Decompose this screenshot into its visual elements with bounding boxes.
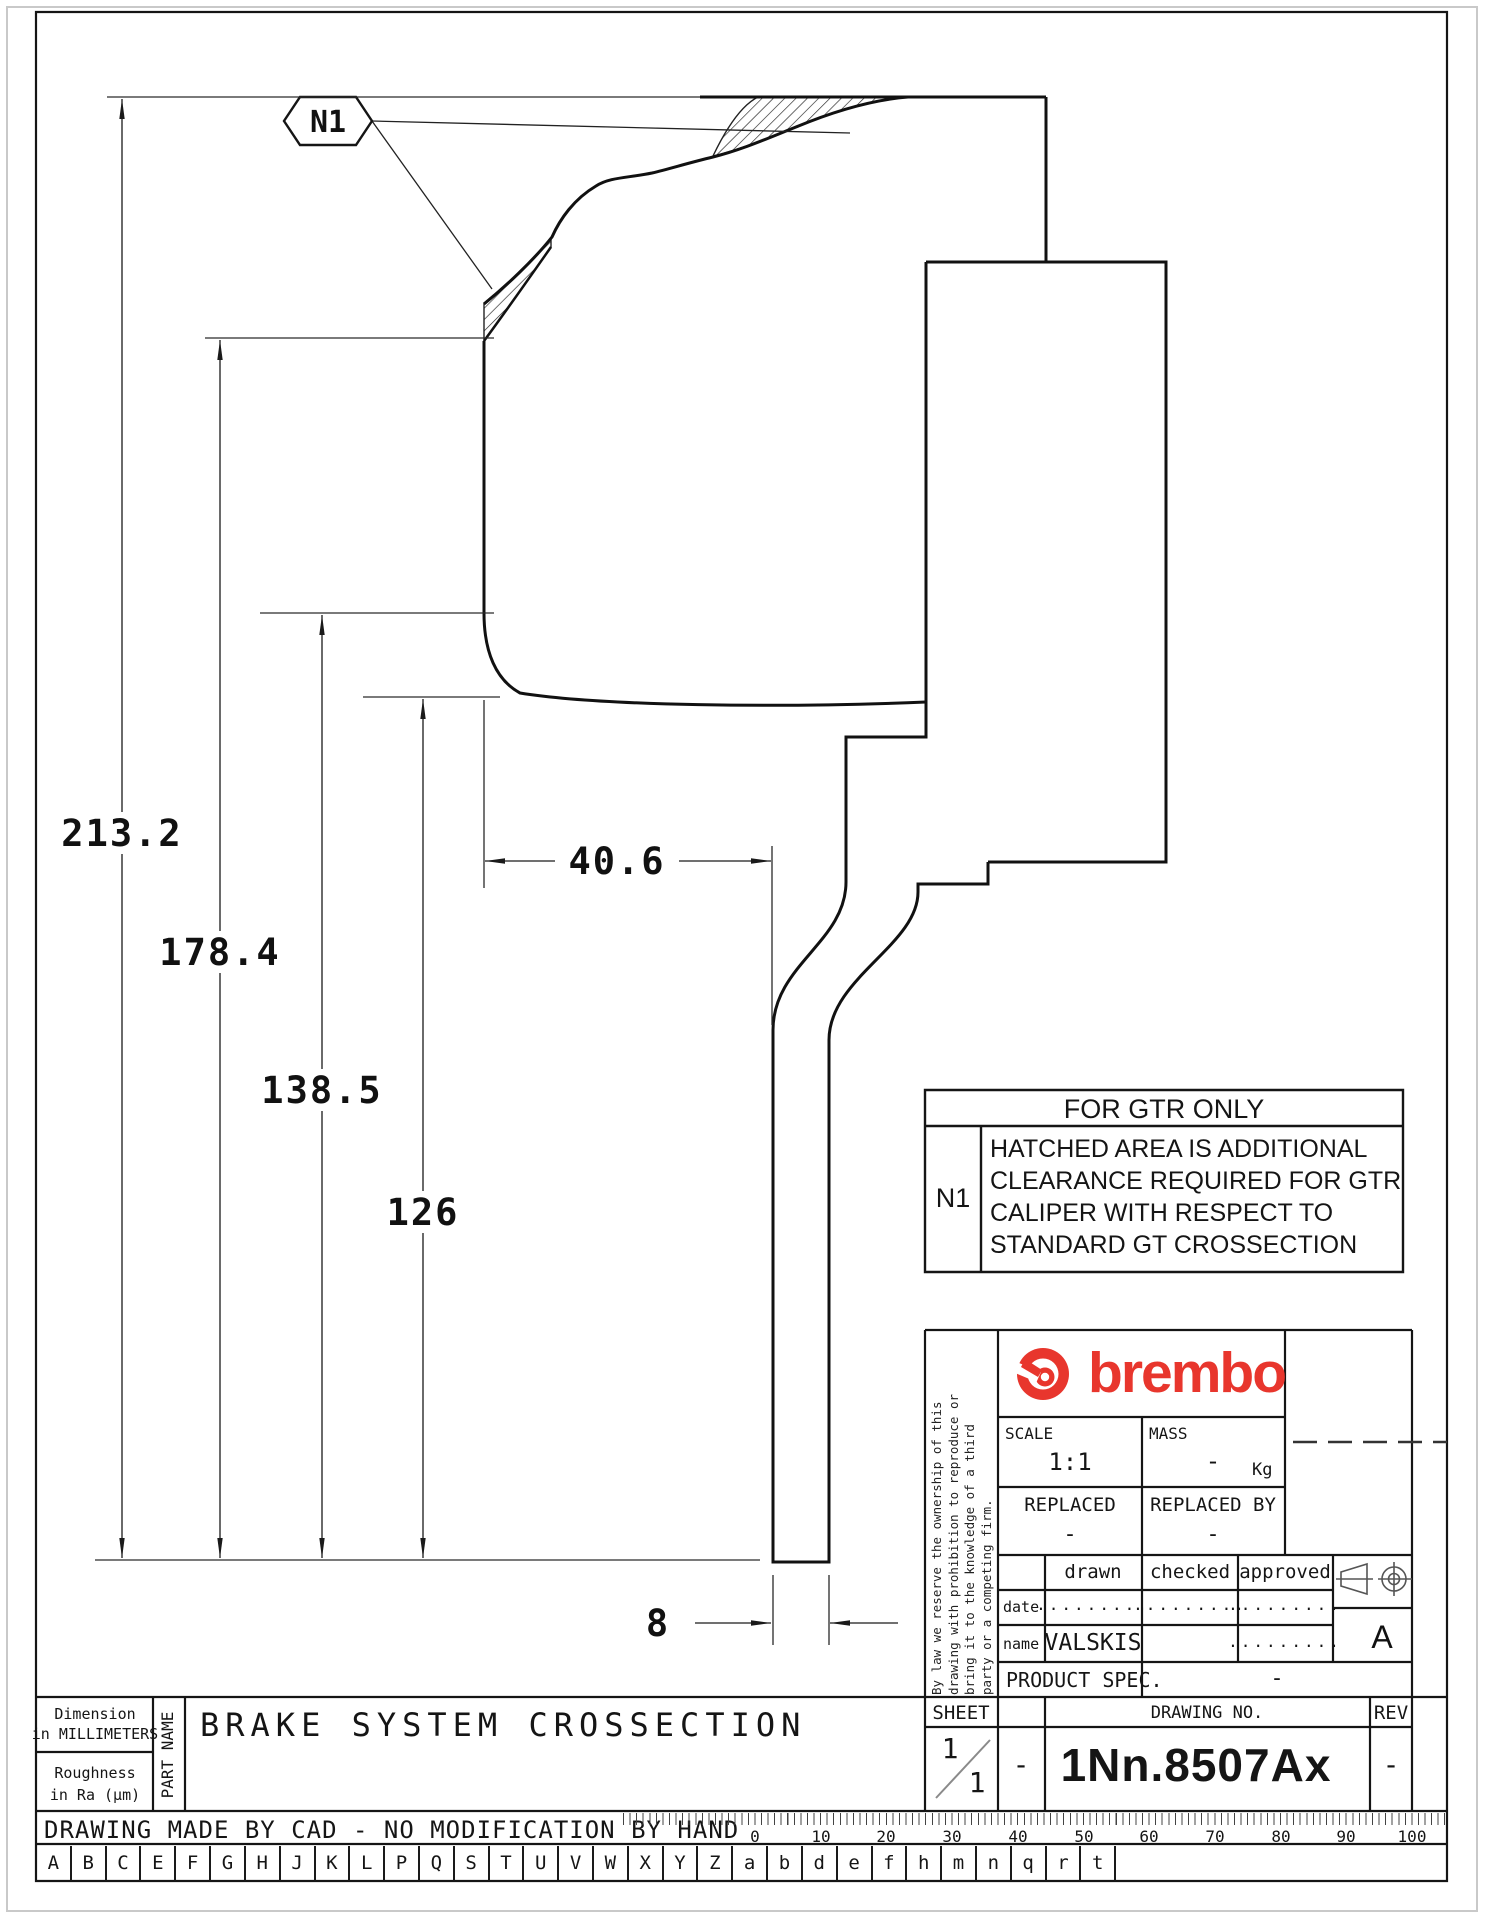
- letter-cell: a: [733, 1846, 768, 1881]
- letter-cell: G: [211, 1846, 246, 1881]
- ruler-ticks: [623, 1813, 1445, 1825]
- mass-label: MASS: [1149, 1424, 1188, 1443]
- approved-header: approved: [1239, 1561, 1331, 1583]
- date-label: date: [1003, 1598, 1039, 1616]
- n1-callout-label: N1: [310, 105, 346, 140]
- disclaimer-line: party or a competing firm.: [978, 1333, 995, 1695]
- replaced-by-value: -: [1206, 1522, 1219, 1547]
- letter-cell: h: [907, 1846, 942, 1881]
- letter-cell: b: [768, 1846, 803, 1881]
- hatched-clearance-areas: [484, 97, 908, 341]
- dimension-labels: 213.2 178.4 138.5 126 40.6 8: [58, 812, 679, 1645]
- roughness-note-line2: in Ra (µm): [50, 1786, 140, 1804]
- letter-cell: Y: [664, 1846, 699, 1881]
- brembo-logo-icon: [1015, 1346, 1071, 1402]
- letter-cell: S: [455, 1846, 490, 1881]
- mass-unit: Kg: [1252, 1460, 1272, 1480]
- letter-cell: Q: [420, 1846, 455, 1881]
- format-letter: A: [1371, 1619, 1393, 1655]
- gtr-table-title: FOR GTR ONLY: [1064, 1094, 1265, 1125]
- rev-label: REV: [1374, 1702, 1408, 1724]
- name-label: name: [1003, 1635, 1039, 1653]
- gtr-note-line: CLEARANCE REQUIRED FOR GTR: [990, 1165, 1400, 1197]
- rev-value: -: [1383, 1748, 1400, 1781]
- projection-symbol-icon: [1336, 1562, 1412, 1596]
- replaced-value: -: [1063, 1522, 1076, 1547]
- letter-cell: K: [316, 1846, 351, 1881]
- checked-header: checked: [1150, 1561, 1230, 1583]
- letter-cell: B: [72, 1846, 107, 1881]
- gtr-note-line: HATCHED AREA IS ADDITIONAL: [990, 1133, 1400, 1165]
- letter-cell: H: [246, 1846, 281, 1881]
- drawing-number: 1Nn.8507Ax: [1061, 1738, 1332, 1792]
- dimension-note-line1: Dimension: [54, 1705, 135, 1723]
- drawing-no-label: DRAWING NO.: [1151, 1703, 1264, 1723]
- product-spec-value: -: [1270, 1666, 1283, 1691]
- dim-label-width: 40.6: [568, 840, 665, 883]
- part-name: BRAKE SYSTEM CROSSECTION: [200, 1706, 806, 1744]
- letter-cell: J: [281, 1846, 316, 1881]
- letter-cell: n: [977, 1846, 1012, 1881]
- letter-cell: E: [141, 1846, 176, 1881]
- letter-cell: Z: [698, 1846, 733, 1881]
- brembo-wordmark: brembo: [1088, 1340, 1285, 1406]
- letter-cell: d: [803, 1846, 838, 1881]
- letter-cells-row: A B C E F G H J K L P Q S T U V W X Y Z …: [37, 1846, 1116, 1881]
- disclaimer-line: bring it to the knowledge of a third: [962, 1333, 979, 1695]
- letter-cell: L: [350, 1846, 385, 1881]
- dim-label-126: 126: [387, 1191, 460, 1234]
- ownership-disclaimer: By law we reserve the ownership of this …: [926, 1332, 997, 1695]
- letter-cell: m: [942, 1846, 977, 1881]
- dim-label-thickness: 8: [646, 1602, 670, 1645]
- scale-value: 1:1: [1048, 1448, 1091, 1476]
- sheet-aux-value: -: [1013, 1748, 1030, 1781]
- sheet-label: SHEET: [932, 1702, 989, 1724]
- product-spec-label: PRODUCT SPEC.: [1006, 1668, 1163, 1692]
- letter-cell: U: [524, 1846, 559, 1881]
- letter-cell: r: [1047, 1846, 1082, 1881]
- replaced-label: REPLACED: [1024, 1494, 1116, 1516]
- bell-wall-and-bottom: [484, 341, 926, 705]
- letter-cell: f: [873, 1846, 908, 1881]
- n1-leader-lower: [372, 121, 492, 289]
- replaced-by-label: REPLACED BY: [1150, 1494, 1276, 1516]
- ruler-label: 0: [750, 1827, 760, 1846]
- scale-label: SCALE: [1005, 1424, 1053, 1443]
- letter-cell: e: [838, 1846, 873, 1881]
- ruler-label: 30: [942, 1827, 961, 1846]
- drawn-header: drawn: [1064, 1561, 1121, 1583]
- gtr-note-line: STANDARD GT CROSSECTION: [990, 1229, 1400, 1261]
- ruler-label: 80: [1271, 1827, 1290, 1846]
- disclaimer-line: By law we reserve the ownership of this: [929, 1333, 946, 1695]
- letter-cell: W: [594, 1846, 629, 1881]
- caliper-body-rect: [926, 262, 1166, 862]
- gt-profile-curve: [484, 97, 908, 304]
- ruler-label: 100: [1398, 1827, 1427, 1846]
- letter-cell: T: [490, 1846, 525, 1881]
- letter-cell: V: [559, 1846, 594, 1881]
- letter-cell: q: [1012, 1846, 1047, 1881]
- name-approved-dots: .........: [1228, 1632, 1342, 1651]
- roughness-note-line1: Roughness: [54, 1764, 135, 1782]
- letter-cell: X: [629, 1846, 664, 1881]
- part-name-label-strip: PART NAME: [153, 1699, 185, 1811]
- ruler-label: 60: [1139, 1827, 1158, 1846]
- dimension-note-line2: in MILLIMETERS: [32, 1725, 158, 1743]
- letter-cell: C: [107, 1846, 142, 1881]
- ruler-label: 40: [1008, 1827, 1027, 1846]
- extension-lines: [95, 97, 829, 1645]
- gtr-note-line: CALIPER WITH RESPECT TO: [990, 1197, 1400, 1229]
- sheet-numerator: 1: [942, 1732, 959, 1765]
- letter-cell: t: [1081, 1846, 1116, 1881]
- letter-cell: A: [37, 1846, 72, 1881]
- dimension-lines: [122, 99, 898, 1623]
- disc-profile: [484, 97, 1166, 1562]
- letter-cell: F: [176, 1846, 211, 1881]
- dim-label-178: 178.4: [159, 931, 280, 974]
- mass-value: -: [1206, 1447, 1220, 1475]
- name-drawn-value: VALSKIS: [1045, 1630, 1142, 1656]
- sheet-denominator: 1: [969, 1766, 986, 1799]
- dim-label-138: 138.5: [261, 1069, 382, 1112]
- ruler-label: 50: [1074, 1827, 1093, 1846]
- ruler-label: 70: [1205, 1827, 1224, 1846]
- ruler-label: 10: [811, 1827, 830, 1846]
- ruler-label: 20: [876, 1827, 895, 1846]
- gtr-table-ref: N1: [936, 1183, 971, 1214]
- drawing-sheet: N1 213.2 178.4 138.5 126 40.6 8: [0, 0, 1486, 1920]
- ruler-label: 90: [1336, 1827, 1355, 1846]
- disclaimer-line: drawing with prohibition to reproduce or: [945, 1333, 962, 1695]
- dim-label-overall: 213.2: [61, 812, 182, 855]
- date-approved-dots: .........: [1228, 1595, 1342, 1614]
- gtr-table-note-text: HATCHED AREA IS ADDITIONAL CLEARANCE REQ…: [990, 1133, 1400, 1261]
- part-name-label: PART NAME: [158, 1699, 177, 1811]
- letter-cell: P: [385, 1846, 420, 1881]
